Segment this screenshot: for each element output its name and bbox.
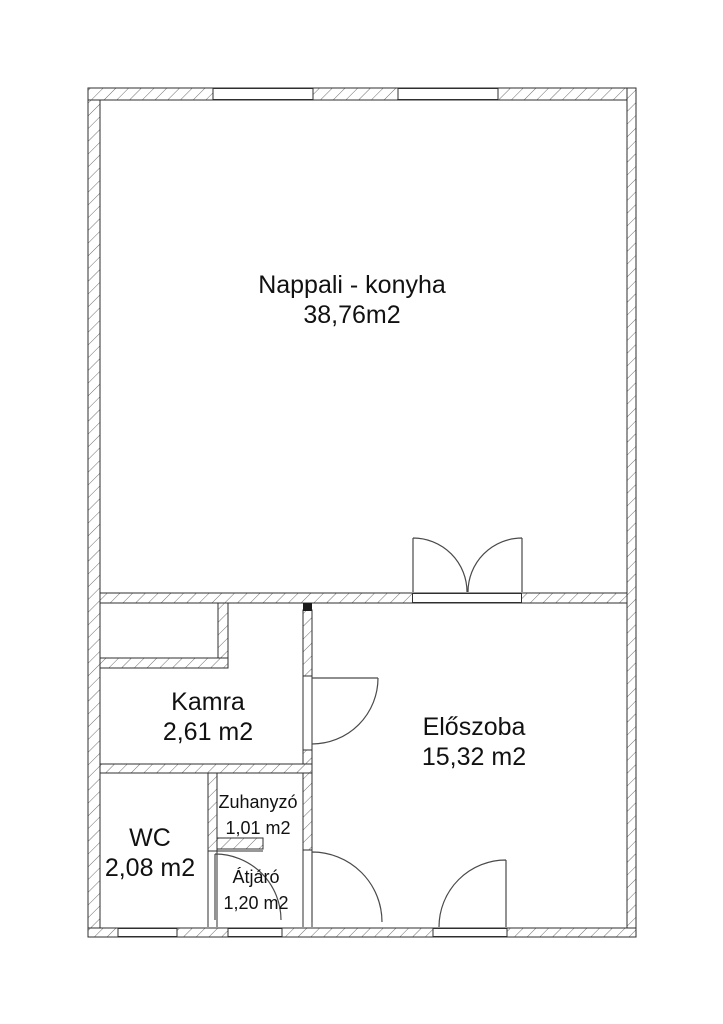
room-name: Nappali - konyha [258, 270, 446, 300]
room-name: Átjáró [223, 864, 288, 890]
exterior-walls [88, 88, 636, 937]
window-bottom-atjaro [228, 929, 282, 937]
room-label-wc: WC 2,08 m2 [105, 823, 195, 883]
room-name: Zuhanyzó [218, 789, 297, 815]
room-label-kamra: Kamra 2,61 m2 [163, 687, 253, 747]
room-area: 1,01 m2 [218, 815, 297, 841]
window-bottom-wc [118, 929, 177, 937]
wall-niche-bottom [100, 658, 228, 668]
room-area: 2,08 m2 [105, 853, 195, 883]
room-area: 15,32 m2 [422, 742, 526, 772]
wall-exterior-top [88, 88, 636, 100]
room-area: 2,61 m2 [163, 717, 253, 747]
door-kamra [312, 678, 378, 744]
room-label-zuhanyzo: Zuhanyzó 1,01 m2 [218, 789, 297, 841]
room-label-eloszoba: Előszoba 15,32 m2 [422, 712, 526, 772]
wall-kamra-bottom [100, 764, 312, 773]
room-name: Kamra [163, 687, 253, 717]
floor-plan-page: Nappali - konyha 38,76m2 Kamra 2,61 m2 E… [0, 0, 723, 1024]
room-label-nappali-konyha: Nappali - konyha 38,76m2 [258, 270, 446, 330]
room-name: WC [105, 823, 195, 853]
window-top-right [398, 89, 498, 100]
wall-nappali-south [100, 593, 627, 603]
window-top-left [213, 89, 313, 100]
door-entrance [439, 860, 506, 927]
room-area: 1,20 m2 [223, 890, 288, 916]
wall-exterior-left [88, 88, 100, 937]
room-name: Előszoba [422, 712, 526, 742]
frame-eloszoba-door [303, 850, 312, 927]
wall-wc-right [208, 773, 217, 851]
doorway-entrance [433, 929, 507, 937]
frame-kamra-door [303, 676, 312, 750]
wall-exterior-right [627, 88, 636, 937]
wall-kamra-eloszoba-upper [303, 610, 312, 676]
frame-wc-door [208, 851, 217, 927]
wall-junction-marker [303, 603, 312, 611]
room-label-atjaro: Átjáró 1,20 m2 [223, 864, 288, 916]
doorway-nappali [413, 594, 522, 603]
door-eloszoba [312, 852, 382, 922]
windows-and-openings [118, 89, 522, 937]
double-door-nappali [413, 538, 522, 592]
room-area: 38,76m2 [258, 300, 446, 330]
